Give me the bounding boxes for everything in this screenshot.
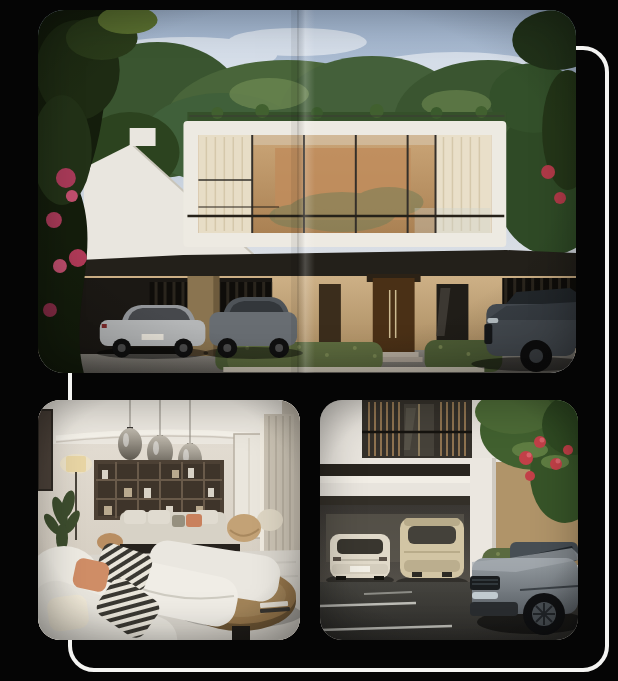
photo-garage-driveway[interactable]	[320, 400, 578, 640]
photo-villa-exterior[interactable]	[38, 10, 576, 373]
vignette	[38, 400, 300, 640]
garage-driveway-image	[320, 400, 578, 640]
vignette	[320, 400, 578, 640]
photo-living-room[interactable]	[38, 400, 300, 640]
page-background	[0, 0, 618, 681]
villa-exterior-image	[38, 10, 576, 373]
vignette	[38, 10, 576, 373]
living-room-image	[38, 400, 300, 640]
